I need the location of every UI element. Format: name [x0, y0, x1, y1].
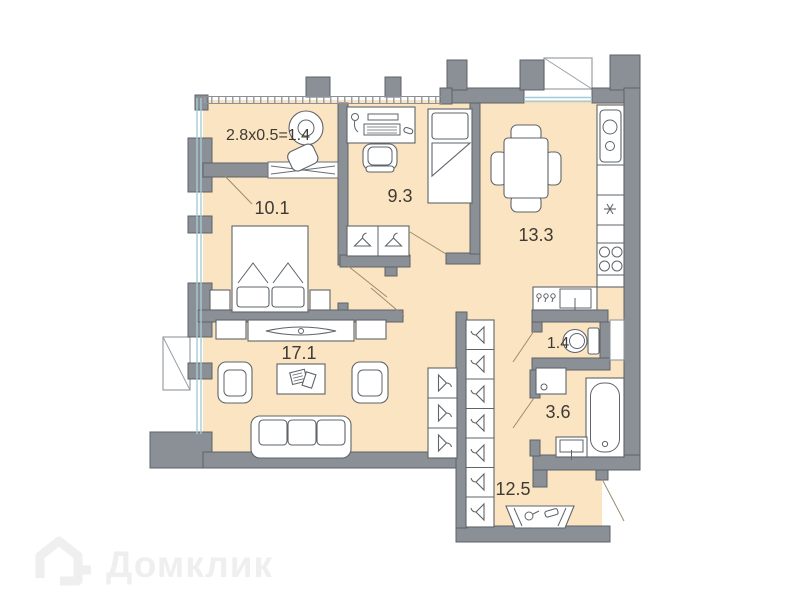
wall-living-hallway [456, 312, 467, 528]
wall-stub-top-2 [520, 60, 544, 90]
wall-right-outer [624, 88, 640, 470]
label-bedroom: 10.1 [254, 198, 289, 218]
wall-stub-entry-right [596, 470, 608, 480]
duct-shaft [610, 320, 624, 360]
wall-stub-balcony-2 [385, 77, 401, 97]
desk-chair-icon [363, 144, 397, 172]
floorplan-page: 2.8x0.5=1.4 10.1 9.3 13.3 17.1 1.4 3.6 1… [0, 0, 800, 600]
wall-wc-left-stub [532, 322, 542, 332]
armchair-left-icon [218, 362, 252, 403]
tv-console-icon [216, 320, 386, 341]
label-kitchen: 13.3 [518, 225, 553, 245]
wall-bedroom2-stub [385, 267, 397, 276]
fridge-icon [600, 110, 621, 162]
wall-bathroom-left-stub [530, 440, 540, 456]
hallway-wardrobe-icon [466, 320, 494, 527]
wall-stub-top-1 [447, 60, 467, 90]
desk-icon [347, 107, 415, 143]
washing-machine-icon [536, 368, 566, 394]
kitchen-counter-right-icon [597, 105, 624, 287]
brand-logo-icon [40, 541, 91, 581]
door-entrance-leaf [602, 479, 624, 521]
wall-bedroom2-door-stub [446, 253, 480, 264]
balcony-slab-top-icon [544, 58, 592, 89]
wall-wc-right [600, 322, 610, 360]
label-bathroom: 3.6 [545, 402, 570, 422]
label-wc: 1.4 [547, 335, 569, 352]
bedroom2-wardrobe-icon [347, 226, 409, 256]
bathroom-sink-icon [556, 437, 587, 460]
armchair-right-icon [352, 362, 388, 403]
watermark: Домклик [40, 541, 273, 585]
floorplan-drawing: 2.8x0.5=1.4 10.1 9.3 13.3 17.1 1.4 3.6 1… [0, 0, 800, 600]
wall-balcony-bedroom [203, 163, 270, 177]
balcony-slab-left-icon [163, 337, 190, 390]
wall-stub-entry-left [533, 470, 547, 487]
nightstand-right-icon [310, 290, 330, 310]
shoe-bench-icon [506, 506, 574, 528]
wall-bedroom2-bottom [340, 255, 410, 267]
wall-pillar-left-2 [188, 216, 212, 233]
label-bedroom2: 9.3 [387, 186, 412, 206]
sofa-icon [251, 416, 351, 458]
label-hallway: 12.5 [495, 479, 530, 499]
label-balcony: 2.8x0.5=1.4 [226, 127, 310, 144]
nightstand-left-icon [210, 290, 230, 310]
wall-kitchen-wc [532, 310, 608, 322]
kitchen-window [524, 98, 592, 102]
wall-pillar-left-4 [188, 363, 212, 379]
bathtub-icon [586, 378, 624, 457]
coffee-table-icon [277, 364, 325, 394]
label-living-room: 17.1 [281, 343, 316, 363]
wall-column-top-right [610, 55, 640, 90]
brand-name: Домклик [106, 544, 273, 585]
wall-stub-balcony-1 [306, 77, 330, 97]
single-bed-icon [428, 109, 472, 203]
living-wardrobe-icon [428, 368, 457, 458]
double-bed-icon [232, 226, 308, 312]
kitchen-counter-bottom-icon [533, 287, 597, 310]
